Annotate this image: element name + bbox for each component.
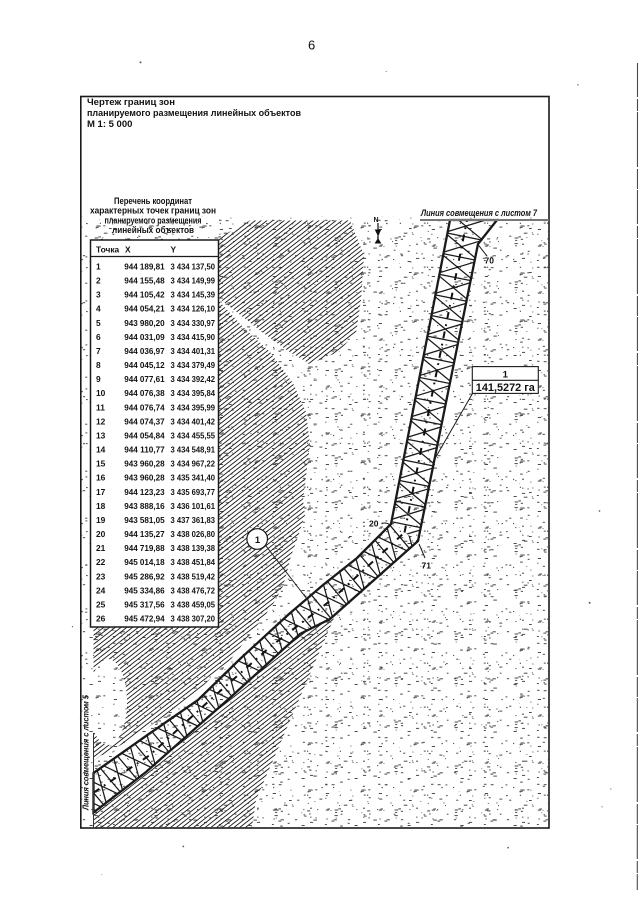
svg-text:1: 1 bbox=[96, 262, 101, 272]
svg-text:13: 13 bbox=[96, 431, 106, 441]
svg-text:16: 16 bbox=[96, 473, 106, 483]
svg-text:3 434 415,90: 3 434 415,90 bbox=[171, 332, 216, 342]
svg-text:12: 12 bbox=[96, 416, 106, 426]
svg-text:3 435 341,40: 3 435 341,40 bbox=[171, 473, 216, 483]
svg-text:3 438 139,38: 3 438 139,38 bbox=[171, 543, 216, 553]
svg-text:945 286,92: 945 286,92 bbox=[124, 571, 165, 581]
svg-text:3 438 519,42: 3 438 519,42 bbox=[171, 571, 216, 581]
svg-text:3 434 401,31: 3 434 401,31 bbox=[171, 346, 216, 356]
svg-text:22: 22 bbox=[96, 557, 106, 567]
svg-text:944 135,27: 944 135,27 bbox=[124, 529, 165, 539]
svg-text:3 434 149,99: 3 434 149,99 bbox=[171, 276, 216, 286]
svg-text:71: 71 bbox=[422, 561, 432, 571]
svg-text:19: 19 bbox=[96, 515, 106, 525]
svg-text:944 054,21: 944 054,21 bbox=[124, 304, 165, 314]
svg-text:X: X bbox=[125, 245, 131, 255]
svg-text:14: 14 bbox=[96, 445, 106, 455]
svg-text:3 434 126,10: 3 434 126,10 bbox=[171, 304, 216, 314]
svg-text:943 960,28: 943 960,28 bbox=[124, 459, 165, 469]
svg-text:1: 1 bbox=[255, 535, 261, 546]
svg-text:3 434 379,49: 3 434 379,49 bbox=[171, 360, 216, 370]
svg-text:944 031,09: 944 031,09 bbox=[124, 332, 165, 342]
svg-text:4: 4 bbox=[96, 304, 101, 314]
svg-text:944 110,77: 944 110,77 bbox=[124, 445, 165, 455]
svg-text:20: 20 bbox=[369, 519, 379, 529]
svg-text:11: 11 bbox=[96, 402, 105, 412]
svg-text:Y: Y bbox=[171, 245, 177, 255]
svg-text:3 438 459,05: 3 438 459,05 bbox=[171, 599, 216, 609]
svg-text:3 435 693,77: 3 435 693,77 bbox=[171, 487, 216, 497]
svg-text:планируемого размещения: планируемого размещения bbox=[105, 215, 202, 225]
svg-text:3 434 401,42: 3 434 401,42 bbox=[171, 416, 216, 426]
svg-text:17: 17 bbox=[96, 487, 106, 497]
svg-text:21: 21 bbox=[96, 543, 106, 553]
svg-text:3 434 395,84: 3 434 395,84 bbox=[171, 388, 216, 398]
svg-text:23: 23 bbox=[96, 571, 106, 581]
svg-text:944 074,37: 944 074,37 bbox=[124, 416, 165, 426]
svg-text:10: 10 bbox=[96, 388, 106, 398]
svg-text:945 317,56: 945 317,56 bbox=[124, 599, 165, 609]
svg-text:3: 3 bbox=[96, 290, 101, 300]
svg-text:линейных объектов: линейных объектов bbox=[112, 225, 194, 235]
svg-text:3 434 548,91: 3 434 548,91 bbox=[171, 445, 216, 455]
svg-text:6: 6 bbox=[96, 332, 101, 342]
svg-text:943 960,28: 943 960,28 bbox=[124, 473, 165, 483]
svg-text:18: 18 bbox=[96, 501, 106, 511]
svg-text:944 719,88: 944 719,88 bbox=[124, 543, 165, 553]
svg-text:943 980,20: 943 980,20 bbox=[124, 318, 165, 328]
svg-text:3 434 330,97: 3 434 330,97 bbox=[171, 318, 216, 328]
svg-text:944 054,84: 944 054,84 bbox=[124, 431, 165, 441]
svg-text:141,5272 га: 141,5272 га bbox=[476, 382, 536, 394]
svg-text:Линия совмещения с листом 7: Линия совмещения с листом 7 bbox=[420, 208, 538, 218]
svg-text:Перечень координат: Перечень координат bbox=[114, 196, 192, 206]
svg-text:Точка: Точка bbox=[96, 245, 120, 255]
svg-text:944 123,23: 944 123,23 bbox=[124, 487, 165, 497]
svg-text:943 888,16: 943 888,16 bbox=[124, 501, 165, 511]
svg-text:24: 24 bbox=[96, 585, 106, 595]
svg-text:944 076,74: 944 076,74 bbox=[124, 402, 165, 412]
svg-text:3 434 967,22: 3 434 967,22 bbox=[171, 459, 216, 469]
svg-text:15: 15 bbox=[96, 459, 106, 469]
svg-text:3 437 361,83: 3 437 361,83 bbox=[171, 515, 216, 525]
svg-text:20: 20 bbox=[96, 529, 106, 539]
svg-text:944 155,48: 944 155,48 bbox=[124, 276, 165, 286]
svg-text:3 434 455,55: 3 434 455,55 bbox=[171, 431, 216, 441]
svg-text:945 334,86: 945 334,86 bbox=[124, 585, 165, 595]
svg-text:70: 70 bbox=[485, 256, 495, 266]
svg-text:3 434 392,42: 3 434 392,42 bbox=[171, 374, 216, 384]
svg-text:3 434 137,50: 3 434 137,50 bbox=[171, 262, 216, 272]
svg-text:М 1: 5 000: М 1: 5 000 bbox=[87, 119, 132, 130]
svg-text:3 434 395,99: 3 434 395,99 bbox=[171, 402, 216, 412]
svg-text:944 077,61: 944 077,61 bbox=[124, 374, 165, 384]
svg-text:944 189,81: 944 189,81 bbox=[124, 262, 165, 272]
svg-text:944 076,38: 944 076,38 bbox=[124, 388, 165, 398]
svg-text:7: 7 bbox=[96, 346, 101, 356]
svg-text:планируемого размещения линейн: планируемого размещения линейных объекто… bbox=[87, 108, 301, 119]
svg-text:3 438 307,20: 3 438 307,20 bbox=[171, 614, 216, 624]
svg-text:Чертеж границ зон: Чертеж границ зон bbox=[87, 97, 175, 108]
svg-text:943 581,05: 943 581,05 bbox=[124, 515, 165, 525]
svg-text:9: 9 bbox=[96, 374, 101, 384]
svg-text:945 014,18: 945 014,18 bbox=[124, 557, 165, 567]
svg-text:N: N bbox=[374, 217, 379, 224]
svg-text:3 438 451,84: 3 438 451,84 bbox=[171, 557, 216, 567]
svg-text:3 434 145,39: 3 434 145,39 bbox=[171, 290, 216, 300]
svg-text:25: 25 bbox=[96, 599, 106, 609]
svg-text:3 438 476,72: 3 438 476,72 bbox=[171, 585, 216, 595]
svg-text:2: 2 bbox=[96, 276, 101, 286]
svg-text:945 472,94: 945 472,94 bbox=[124, 614, 165, 624]
svg-text:6: 6 bbox=[308, 38, 315, 53]
svg-text:944 045,12: 944 045,12 bbox=[124, 360, 165, 370]
svg-text:26: 26 bbox=[96, 614, 106, 624]
svg-text:8: 8 bbox=[96, 360, 101, 370]
svg-text:1: 1 bbox=[503, 370, 509, 381]
svg-text:3 438 026,80: 3 438 026,80 bbox=[171, 529, 216, 539]
svg-text:944 105,42: 944 105,42 bbox=[124, 290, 165, 300]
svg-text:Линия совмещения с листом 5: Линия совмещения с листом 5 bbox=[81, 695, 91, 811]
svg-text:5: 5 bbox=[96, 318, 101, 328]
svg-text:944 036,97: 944 036,97 bbox=[124, 346, 165, 356]
svg-text:характерных точек границ зон: характерных точек границ зон bbox=[90, 206, 216, 216]
svg-text:3 436 101,61: 3 436 101,61 bbox=[171, 501, 216, 511]
